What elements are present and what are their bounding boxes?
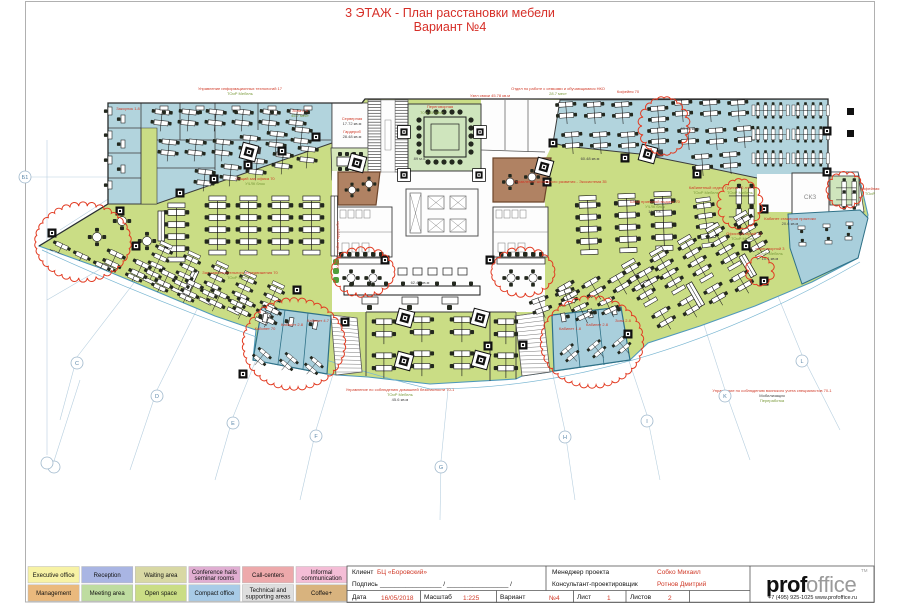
svg-text:45.6 кв.м: 45.6 кв.м — [392, 397, 409, 402]
svg-text:ТОиР Мебель: ТОиР Мебель — [227, 91, 253, 96]
svg-text:Масштаб: Масштаб — [424, 593, 452, 601]
svg-text:L: L — [800, 359, 803, 365]
svg-text:Лист: Лист — [577, 594, 591, 601]
svg-text:Кабинет 70: Кабинет 70 — [255, 326, 277, 331]
svg-text:УЧЛК блок: УЧЛК блок — [245, 181, 265, 186]
svg-text:G: G — [439, 465, 443, 471]
svg-text:ТОиР: ТОиР — [865, 191, 876, 196]
svg-text:Technical and: Technical and — [250, 588, 287, 594]
svg-text:1: 1 — [607, 595, 611, 602]
svg-text:ТОиР Мебель: ТОиР Мебель — [227, 275, 253, 280]
svg-text:K: K — [723, 394, 727, 400]
svg-text:10.1 кв.м: 10.1 кв.м — [762, 256, 779, 261]
svg-text:Кабинет 2.8: Кабинет 2.8 — [586, 322, 609, 327]
svg-text:Reception: Reception — [94, 573, 121, 579]
svg-text:БЦ «Боровский»: БЦ «Боровский» — [377, 568, 427, 576]
svg-text:Подпись: Подпись — [352, 581, 378, 588]
svg-text:prof: prof — [766, 572, 808, 597]
svg-text:Менеджер проекта: Менеджер проекта — [552, 569, 610, 576]
svg-text:Кофейня 70: Кофейня 70 — [617, 89, 640, 94]
svg-text:Кабина стойки гардероба: Кабина стойки гардероба — [335, 221, 340, 269]
svg-text:Вариант: Вариант — [500, 594, 525, 601]
svg-text:Переработка: Переработка — [760, 398, 785, 403]
svg-text:seminar rooms: seminar rooms — [195, 576, 235, 582]
svg-text:Open space: Open space — [145, 591, 178, 597]
svg-text:ТОиР Мебель: ТОиР Мебель — [693, 190, 719, 195]
svg-text:89 м.о.: 89 м.о. — [414, 156, 427, 161]
svg-text:C: C — [75, 361, 79, 367]
svg-text:TM: TM — [861, 568, 868, 573]
svg-text:63.48 кв.м: 63.48 кв.м — [681, 126, 700, 131]
svg-text:16/05/2018: 16/05/2018 — [381, 595, 414, 602]
svg-text:17.72 кв.м: 17.72 кв.м — [343, 121, 362, 126]
svg-text:Compact office: Compact office — [194, 591, 235, 597]
svg-text:28.7 мест: 28.7 мест — [549, 91, 567, 96]
svg-text:Кабинет 2.8: Кабинет 2.8 — [281, 322, 304, 327]
svg-text:Meeting area: Meeting area — [90, 591, 126, 597]
svg-text:Листов: Листов — [630, 594, 652, 601]
svg-text:60.48 кв.м: 60.48 кв.м — [581, 156, 600, 161]
svg-text:Собко Михаил: Собко Михаил — [657, 568, 701, 576]
svg-text:Консультант-проектировщик: Консультант-проектировщик — [552, 581, 638, 588]
svg-text:1:225: 1:225 — [463, 595, 480, 602]
svg-text:Дата: Дата — [352, 594, 367, 601]
svg-text:+7 (495) 925-1025 www.profof: +7 (495) 925-1025 www.profoffice.ru — [768, 595, 857, 601]
svg-text:Б1: Б1 — [22, 175, 29, 181]
svg-text:Management: Management — [36, 591, 71, 597]
svg-text:Переговорная: Переговорная — [427, 104, 453, 109]
svg-text:103 т.в.: 103 т.в. — [648, 209, 662, 214]
svg-text:ТОиР Мебель: ТОиР Мебель — [731, 236, 757, 241]
svg-text:Кабинет 1.8: Кабинет 1.8 — [559, 326, 582, 331]
svg-text:office: office — [806, 572, 856, 597]
svg-text:Вариант №4: Вариант №4 — [414, 20, 487, 34]
svg-text:ТОиР Мебель: ТОиР Мебель — [727, 190, 753, 195]
svg-text:Conference halls: Conference halls — [192, 570, 237, 576]
svg-text:_________________ / ________: _________________ / _________________ / — [379, 581, 512, 588]
svg-text:D: D — [155, 394, 159, 400]
svg-text:Informal: Informal — [311, 570, 333, 576]
svg-text:Управление жилищного развития: Управление жилищного развития - Экосисте… — [513, 179, 607, 184]
svg-text:E: E — [231, 421, 235, 427]
svg-text:№4: №4 — [549, 595, 560, 602]
svg-text:H: H — [563, 435, 567, 441]
svg-text:СКЗ: СКЗ — [804, 194, 816, 201]
svg-text:Waiting area: Waiting area — [144, 573, 178, 579]
svg-text:20.6 кв.м: 20.6 кв.м — [782, 221, 799, 226]
svg-text:Call-centers: Call-centers — [252, 573, 284, 579]
svg-text:communication: communication — [301, 576, 341, 582]
svg-text:62.48 кв.м: 62.48 кв.м — [411, 280, 430, 285]
svg-text:Закоулок 1.8: Закоулок 1.8 — [116, 106, 140, 111]
svg-text:70 x 45 Мест: 70 x 45 Мест — [420, 110, 444, 115]
svg-text:Кабинет 4.7: Кабинет 4.7 — [307, 318, 330, 323]
svg-text:Executive office: Executive office — [33, 573, 76, 579]
svg-text:2: 2 — [668, 595, 672, 602]
svg-text:Coffee+: Coffee+ — [311, 591, 333, 597]
svg-text:supporting areas: supporting areas — [246, 594, 291, 600]
svg-text:Ротнов Дмитрий: Ротнов Дмитрий — [657, 580, 707, 588]
svg-text:Клиент: Клиент — [352, 569, 373, 576]
svg-text:28.48 кв.м: 28.48 кв.м — [343, 134, 362, 139]
svg-text:Узел связи 45.78 кв.м: Узел связи 45.78 кв.м — [470, 93, 510, 98]
svg-text:45.7 мест: 45.7 мест — [291, 113, 309, 118]
svg-text:Зона 2.8: Зона 2.8 — [615, 318, 632, 323]
svg-text:3 ЭТАЖ - План расстановки мебе: 3 ЭТАЖ - План расстановки мебели — [345, 6, 555, 20]
